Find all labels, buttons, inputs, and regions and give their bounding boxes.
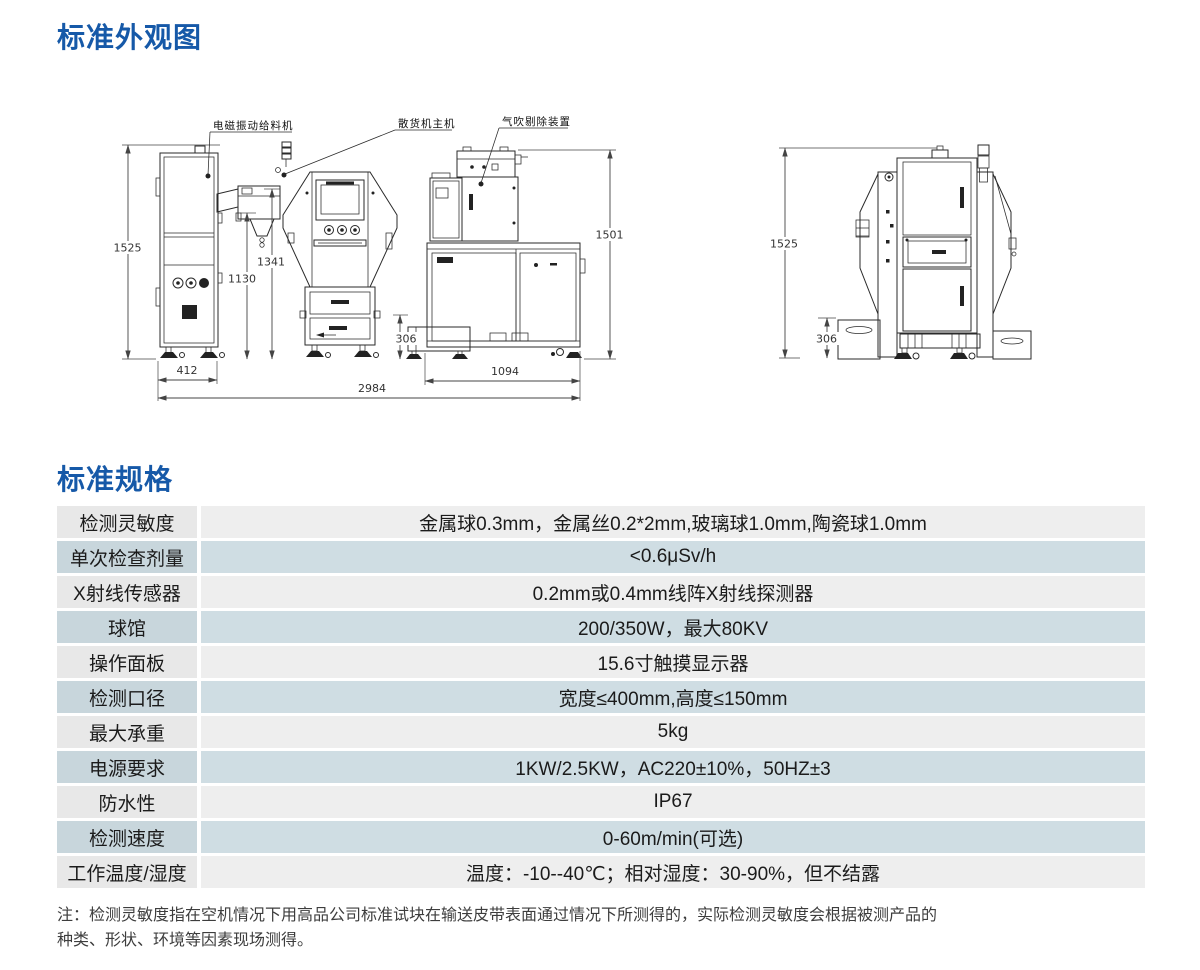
dim-412: 412 <box>177 364 198 377</box>
spec-table-body: 检测灵敏度 金属球0.3mm，金属丝0.2*2mm,玻璃球1.0mm,陶瓷球1.… <box>57 506 1145 888</box>
spec-label: 球馆 <box>57 611 197 643</box>
table-row: 单次检查剂量 <0.6μSv/h <box>57 541 1145 573</box>
footnote: 注：检测灵敏度指在空机情况下用高品公司标准试块在输送皮带表面通过情况下所测得的，… <box>57 904 1117 954</box>
table-row: 检测灵敏度 金属球0.3mm，金属丝0.2*2mm,玻璃球1.0mm,陶瓷球1.… <box>57 506 1145 538</box>
feeder-cabinet <box>156 146 225 358</box>
table-row: 球馆 200/350W，最大80KV <box>57 611 1145 643</box>
front-view-drawing: 1525 1130 1341 1501 306 412 1094 2984 电磁… <box>60 93 700 428</box>
label-main-machine: 散货机主机 <box>398 117 456 130</box>
spec-label: 单次检查剂量 <box>57 541 197 573</box>
table-row: 操作面板 15.6寸触摸显示器 <box>57 646 1145 678</box>
table-row: 检测速度 0-60m/min(可选) <box>57 821 1145 853</box>
dim-1525-side: 1525 <box>770 238 798 251</box>
spec-label: 检测口径 <box>57 681 197 713</box>
label-air-blow: 气吹剔除装置 <box>502 115 571 128</box>
appearance-section-title: 标准外观图 <box>57 16 202 56</box>
dim-306-side: 306 <box>816 333 837 346</box>
spec-label: 电源要求 <box>57 751 197 783</box>
spec-value: 宽度≤400mm,高度≤150mm <box>201 681 1145 713</box>
side-view-drawing: 1525 306 <box>752 128 1072 378</box>
table-row: 电源要求 1KW/2.5KW，AC220±10%，50HZ±3 <box>57 751 1145 783</box>
spec-label: 操作面板 <box>57 646 197 678</box>
spec-label: 工作温度/湿度 <box>57 856 197 888</box>
feeder-trough <box>217 186 280 247</box>
side-view-svg: 1525 306 <box>752 128 1072 373</box>
spec-page: { "page": { "appearance_title": "标准外观图",… <box>0 0 1200 970</box>
spec-value: 200/350W，最大80KV <box>201 611 1145 643</box>
footnote-line-1: 注：检测灵敏度指在空机情况下用高品公司标准试块在输送皮带表面通过情况下所测得的，… <box>57 904 1117 929</box>
spec-value: 0.2mm或0.4mm线阵X射线探测器 <box>201 576 1145 608</box>
footnote-line-2: 种类、形状、环境等因素现场测得。 <box>57 929 1117 954</box>
spec-value: 15.6寸触摸显示器 <box>201 646 1145 678</box>
side-machine <box>838 145 1031 359</box>
spec-label: X射线传感器 <box>57 576 197 608</box>
spec-section-title: 标准规格 <box>57 458 173 498</box>
table-row: 检测口径 宽度≤400mm,高度≤150mm <box>57 681 1145 713</box>
spec-value: 1KW/2.5KW，AC220±10%，50HZ±3 <box>201 751 1145 783</box>
spec-label: 防水性 <box>57 786 197 818</box>
spec-value: <0.6μSv/h <box>201 541 1145 573</box>
dim-2984: 2984 <box>358 382 386 395</box>
spec-label: 检测速度 <box>57 821 197 853</box>
front-dimensions: 1525 1130 1341 1501 306 412 1094 2984 <box>111 145 626 401</box>
spec-table: 检测灵敏度 金属球0.3mm，金属丝0.2*2mm,玻璃球1.0mm,陶瓷球1.… <box>57 506 1145 891</box>
label-feeder: 电磁振动给料机 <box>213 119 294 132</box>
dim-1501: 1501 <box>596 229 624 242</box>
spec-label: 检测灵敏度 <box>57 506 197 538</box>
dim-1341: 1341 <box>257 256 285 269</box>
spec-value: 温度：-10--40℃；相对湿度：30-90%，但不结露 <box>201 856 1145 888</box>
table-row: 最大承重 5kg <box>57 716 1145 748</box>
table-row: 防水性 IP67 <box>57 786 1145 818</box>
main-machine <box>283 172 397 358</box>
spec-value: IP67 <box>201 786 1145 818</box>
signal-tower <box>276 142 292 173</box>
spec-value: 5kg <box>201 716 1145 748</box>
part-labels: 电磁振动给料机 散货机主机 气吹剔除装置 <box>206 115 572 187</box>
table-row: X射线传感器 0.2mm或0.4mm线阵X射线探测器 <box>57 576 1145 608</box>
spec-label: 最大承重 <box>57 716 197 748</box>
dim-1130: 1130 <box>228 273 256 286</box>
dim-1525-front: 1525 <box>114 242 142 255</box>
dim-1094: 1094 <box>491 365 519 378</box>
table-row: 工作温度/湿度 温度：-10--40℃；相对湿度：30-90%，但不结露 <box>57 856 1145 888</box>
front-view-svg: 1525 1130 1341 1501 306 412 1094 2984 电磁… <box>60 93 700 423</box>
air-blow-unit <box>406 147 585 359</box>
dim-306-front: 306 <box>396 333 417 346</box>
spec-value: 0-60m/min(可选) <box>201 821 1145 853</box>
side-dimensions: 1525 306 <box>768 148 937 358</box>
spec-value: 金属球0.3mm，金属丝0.2*2mm,玻璃球1.0mm,陶瓷球1.0mm <box>201 506 1145 538</box>
